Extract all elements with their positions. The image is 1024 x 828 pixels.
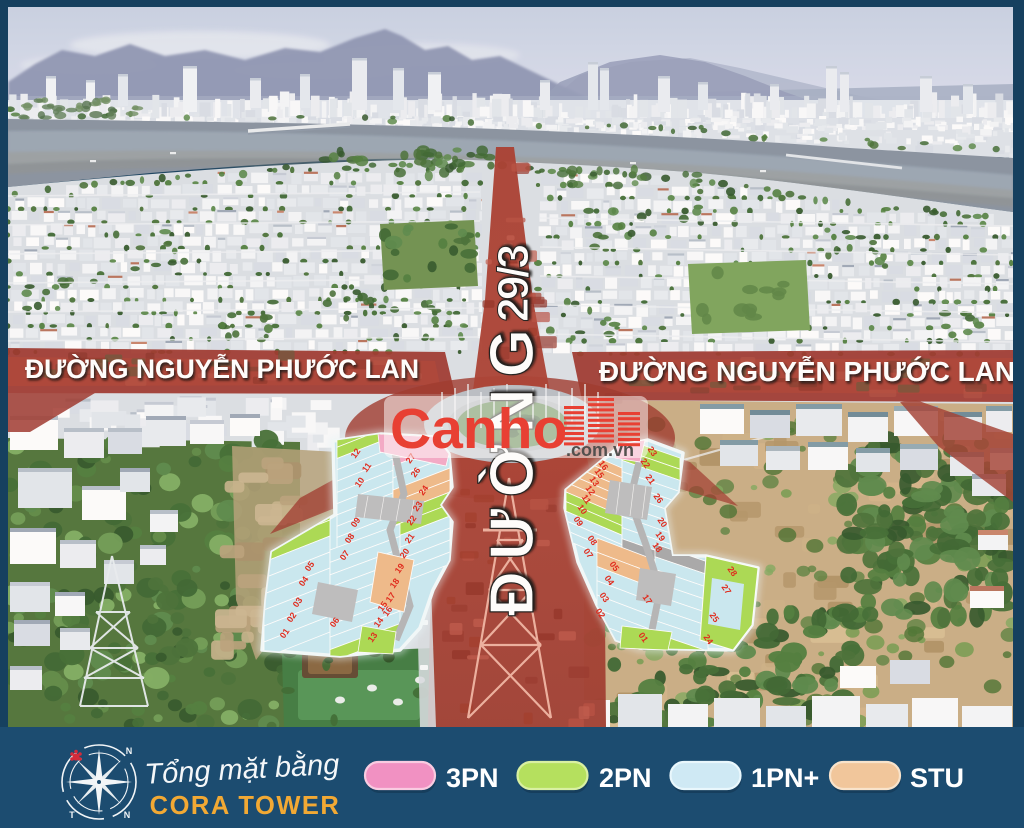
svg-text:1PN+: 1PN+ (751, 763, 819, 793)
svg-text:T: T (69, 810, 75, 820)
svg-text:3PN: 3PN (446, 763, 499, 793)
svg-text:N: N (124, 810, 131, 820)
svg-text:N: N (126, 746, 133, 756)
svg-text:CORA TOWER: CORA TOWER (150, 792, 341, 820)
svg-text:STU: STU (910, 763, 964, 793)
svg-text:2PN: 2PN (599, 763, 652, 793)
